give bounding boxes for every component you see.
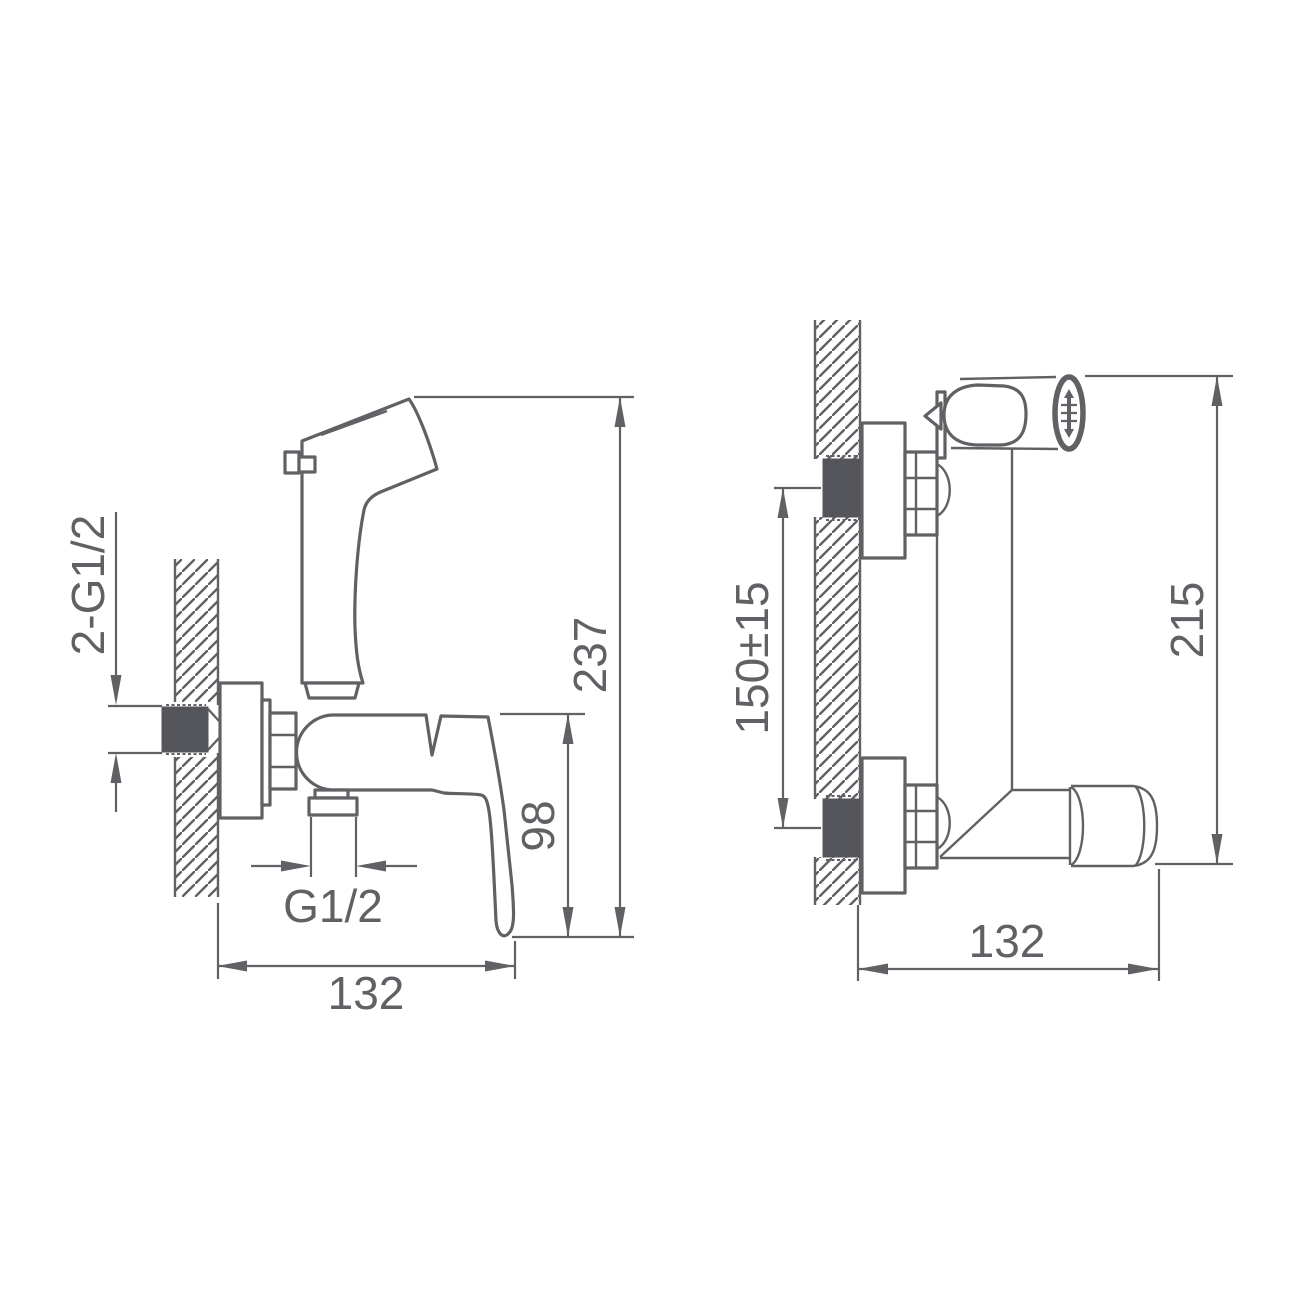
inlet-fitting — [162, 705, 219, 754]
hex-nut — [270, 713, 296, 789]
technical-drawing-page: 2-G1/2 237 98 G1/2 132 — [0, 0, 1300, 1300]
dim-label-overall-height-front: 215 — [1161, 582, 1213, 659]
dim-overall-height-side: 237 — [414, 397, 634, 937]
outlet-port — [309, 790, 357, 815]
upper-inlet-fitting — [823, 456, 860, 520]
dim-label-mount-spacing: 150±15 — [726, 581, 778, 734]
dim-label-width-front: 132 — [969, 915, 1046, 967]
sprayer-clip-inner — [299, 457, 315, 472]
wall-plate — [220, 683, 262, 818]
dim-outlet-thread: G1/2 — [251, 817, 417, 932]
lower-mount-plate — [862, 758, 905, 893]
dim-wall-thread: 2-G1/2 — [62, 512, 162, 812]
upper-mount-plate — [862, 423, 905, 558]
dim-label-outlet-thread: G1/2 — [283, 880, 383, 932]
dim-label-body-height: 98 — [512, 800, 564, 851]
front-view: 150±15 215 132 — [726, 320, 1233, 981]
sprayer-clip — [285, 452, 299, 473]
dim-mount-spacing: 150±15 — [726, 488, 821, 828]
handle-end-cap — [1133, 786, 1157, 866]
sprayer-handle-base — [305, 683, 359, 698]
technical-drawing-canvas: 2-G1/2 237 98 G1/2 132 — [0, 0, 1300, 1300]
dim-label-wall-thread: 2-G1/2 — [62, 515, 114, 656]
mixer-body-front — [937, 392, 1157, 866]
dim-label-overall-height-side: 237 — [564, 617, 616, 694]
upper-hex-nut — [905, 452, 950, 535]
dim-overall-height-front: 215 — [1085, 376, 1233, 864]
hand-sprayer — [285, 399, 437, 698]
sprayer-head-front — [925, 377, 1083, 449]
sprayer-clip-front — [925, 403, 941, 429]
side-view: 2-G1/2 237 98 G1/2 132 — [62, 397, 634, 1019]
dim-label-depth-side: 132 — [328, 967, 405, 1019]
handle-ring — [1070, 787, 1083, 865]
lower-inlet-fitting — [823, 796, 860, 860]
